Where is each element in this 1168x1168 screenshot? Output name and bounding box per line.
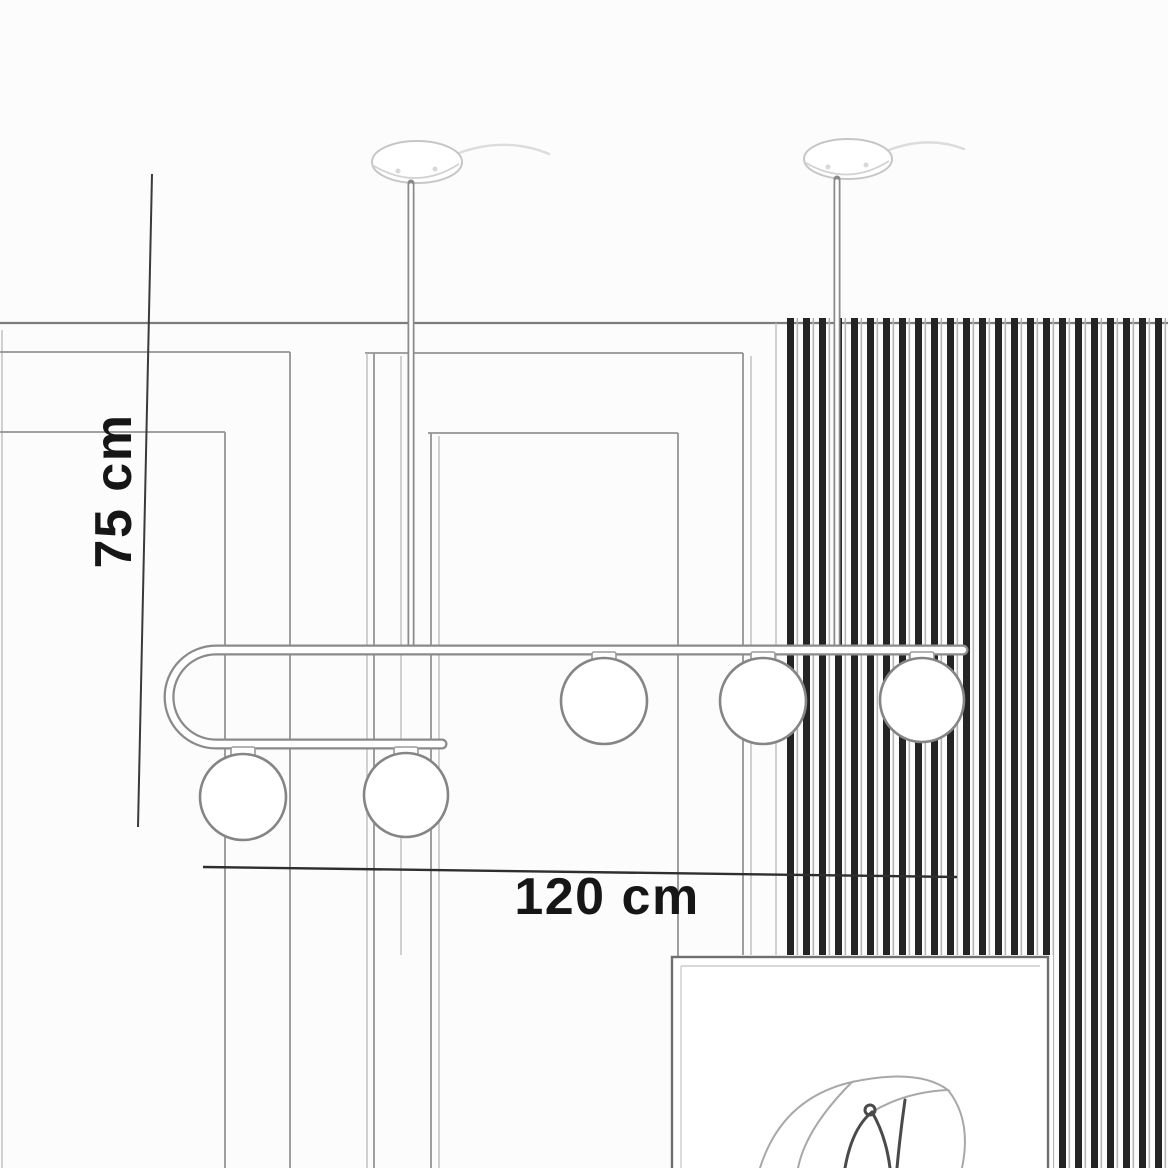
globe-lower-2	[364, 753, 448, 837]
dimension-sketch-canvas: 75 cm 120 cm	[0, 0, 1168, 1168]
globe-lower-1	[200, 754, 286, 840]
globe-upper-3	[880, 658, 964, 742]
globe-upper-1	[561, 658, 647, 744]
width-dimension-label: 120 cm	[514, 867, 699, 927]
sketch-drawing	[0, 0, 1168, 1168]
height-dimension-label: 75 cm	[84, 414, 144, 569]
globe-upper-2	[720, 658, 806, 744]
picture-frame	[672, 957, 1048, 1168]
slat-wall-lower	[1053, 955, 1168, 1168]
framed-picture	[672, 957, 1048, 1168]
slat-wall-upper	[787, 318, 1168, 955]
